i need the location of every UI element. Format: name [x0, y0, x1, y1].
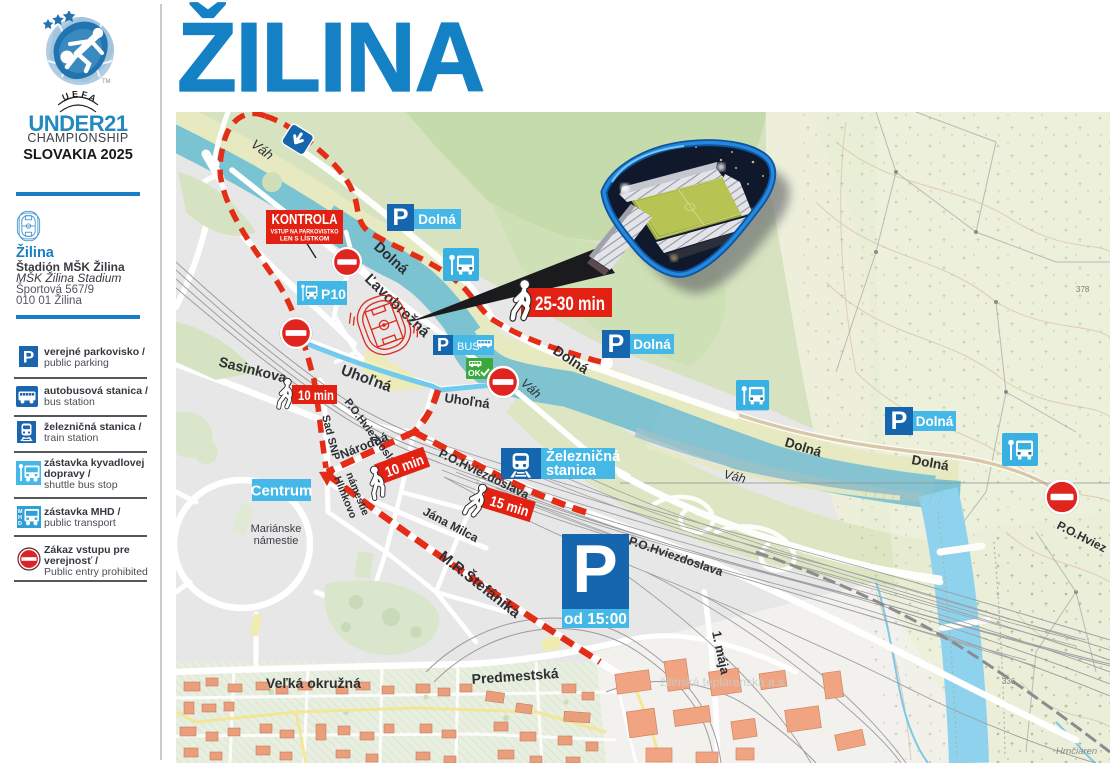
svg-text:námestie: námestie	[254, 535, 299, 547]
svg-text:378: 378	[1076, 285, 1090, 294]
svg-text:BUS: BUS	[457, 341, 480, 353]
svg-text:Centrum: Centrum	[251, 483, 313, 500]
svg-text:Dolná: Dolná	[418, 212, 456, 227]
svg-text:žilinská teplárenská a.s.: žilinská teplárenská a.s.	[660, 675, 787, 689]
svg-text:25-30 min: 25-30 min	[535, 294, 605, 315]
svg-text:od 15:00: od 15:00	[564, 611, 627, 628]
svg-text:D: D	[18, 521, 22, 527]
svg-text:Veľká okružná: Veľká okružná	[266, 675, 361, 691]
svg-text:P: P	[572, 531, 617, 607]
svg-text:P: P	[608, 330, 625, 358]
svg-text:OK: OK	[468, 368, 482, 378]
svg-text:Dolná: Dolná	[633, 337, 671, 352]
svg-text:P10: P10	[321, 286, 346, 302]
svg-text:Mariánske: Mariánske	[251, 523, 302, 535]
svg-text:stanica: stanica	[546, 463, 597, 479]
svg-text:KONTROLA: KONTROLA	[272, 212, 338, 228]
svg-text:Hrnčiaren: Hrnčiaren	[1056, 746, 1097, 757]
svg-text:Dolná: Dolná	[916, 414, 954, 429]
svg-text:P: P	[891, 407, 908, 435]
svg-text:336: 336	[1002, 677, 1016, 686]
svg-text:UEFA: UEFA	[61, 91, 100, 105]
svg-text:P: P	[23, 348, 34, 367]
svg-text:VSTUP NA PARKOVISTKO: VSTUP NA PARKOVISTKO	[271, 229, 339, 236]
svg-text:TM: TM	[102, 79, 111, 85]
svg-text:LEN S LÍSTKOM: LEN S LÍSTKOM	[280, 234, 329, 243]
svg-text:P: P	[392, 204, 408, 231]
svg-text:P: P	[437, 335, 449, 355]
svg-text:10 min: 10 min	[298, 388, 334, 403]
